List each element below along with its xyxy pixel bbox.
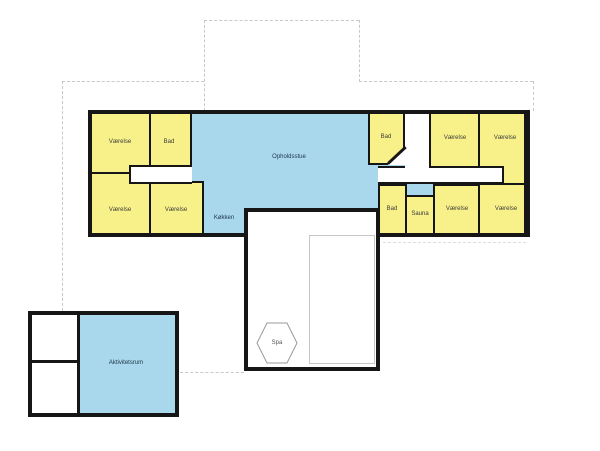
roof-outline-dash-far-right: [533, 81, 534, 111]
room-label-vaerelse-top-left: Værelse: [109, 139, 131, 145]
roof-outline-dash-right-center: [359, 20, 360, 82]
activity-divider-wall: [32, 360, 77, 363]
room-label-opholdsstue: Opholdsstue: [272, 154, 306, 160]
room-label-aktivitetsrum: Aktivitetsrum: [109, 360, 143, 366]
roof-outline-dash-top-center: [204, 20, 359, 21]
roof-outline-dash-left-center: [204, 20, 205, 111]
walkway-dash: [180, 372, 244, 373]
room-label-koekken: Køkken: [214, 215, 234, 221]
floor-plan: Værelse Bad Værelse Værelse Opholdsstue …: [0, 0, 600, 451]
room-label-vaerelse-bottom-mid-right: Værelse: [446, 206, 468, 212]
room-label-sauna: Sauna: [411, 211, 428, 217]
room-label-vaerelse-bottom-left-2: Værelse: [165, 207, 187, 213]
room-label-vaerelse-top-mid-right: Værelse: [444, 135, 466, 141]
roof-outline-dash-bottom-right: [383, 242, 526, 243]
room-label-bad-bottom-right: Bad: [387, 206, 398, 212]
room-label-bad-top-left: Bad: [164, 139, 175, 145]
room-label-vaerelse-bottom-far-right: Værelse: [495, 206, 517, 212]
room-label-vaerelse-bottom-left-1: Værelse: [109, 207, 131, 213]
pool-outline: [309, 235, 375, 364]
corridor-right-vertical: [405, 114, 429, 182]
room-label-spa: Spa: [272, 340, 283, 346]
corridor-left: [129, 165, 192, 184]
room-label-bad-top-right: Bad: [381, 134, 392, 140]
roof-outline-dash-far-left: [62, 81, 63, 311]
roof-outline-dash-top-right: [359, 81, 533, 82]
roof-outline-dash-top-left: [62, 81, 204, 82]
room-label-vaerelse-top-far-right: Værelse: [494, 135, 516, 141]
corridor-right-horizontal: [378, 166, 504, 184]
